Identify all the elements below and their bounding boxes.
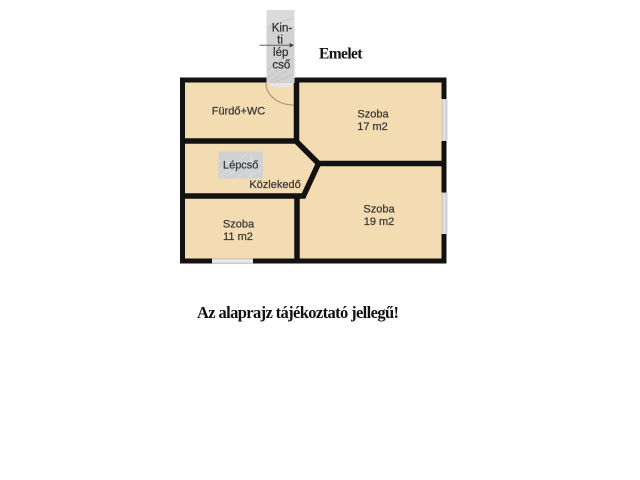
svg-text:Fürdő+WC: Fürdő+WC [212,106,266,118]
svg-text:Emelet: Emelet [319,46,363,63]
svg-text:Az alaprajz tájékoztató jelleg: Az alaprajz tájékoztató jellegű! [197,303,399,322]
svg-text:cső: cső [272,60,290,72]
svg-text:17 m2: 17 m2 [357,121,388,133]
svg-text:Szoba: Szoba [223,219,255,231]
svg-text:lép: lép [273,47,288,59]
svg-text:Szoba: Szoba [363,204,395,216]
svg-text:Szoba: Szoba [357,109,389,121]
svg-text:ti: ti [277,35,283,47]
svg-text:Kin-: Kin- [272,23,293,35]
svg-text:Lépcső: Lépcső [223,160,258,172]
svg-text:19 m2: 19 m2 [364,216,395,228]
svg-text:Közlekedő: Közlekedő [249,179,300,191]
svg-text:11 m2: 11 m2 [223,231,253,243]
